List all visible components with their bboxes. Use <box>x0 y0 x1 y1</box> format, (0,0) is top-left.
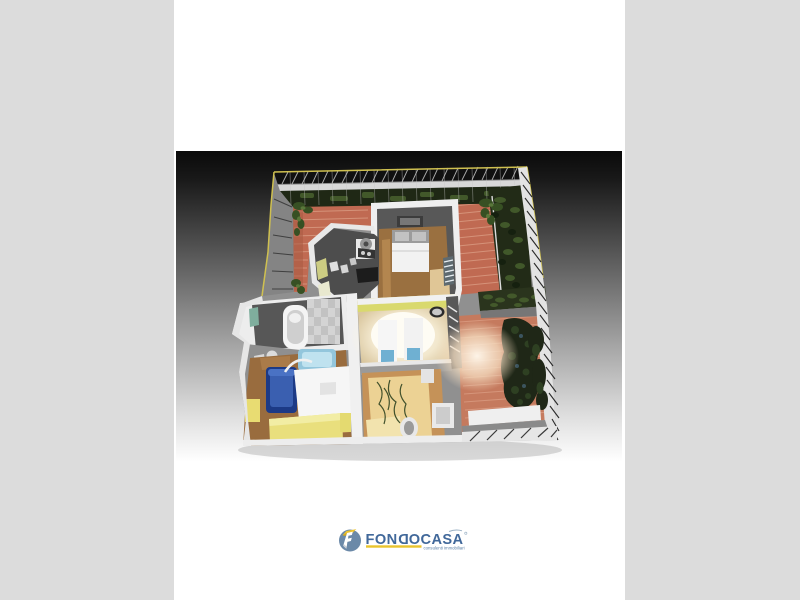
svg-text:consulenti immobiliari: consulenti immobiliari <box>424 545 465 550</box>
